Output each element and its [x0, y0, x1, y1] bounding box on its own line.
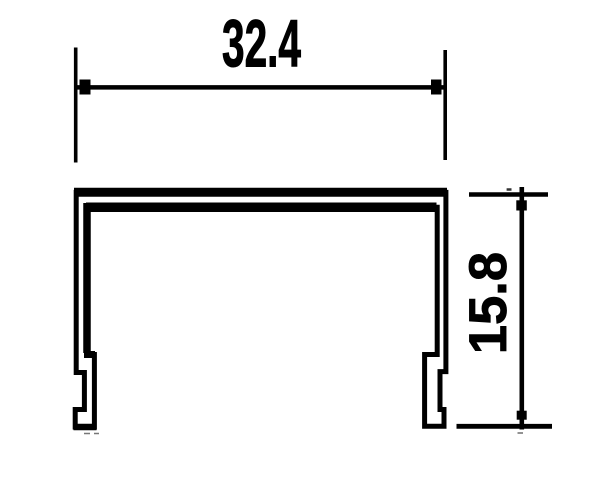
svg-text:15.8: 15.8: [459, 252, 518, 354]
svg-text:32.4: 32.4: [222, 6, 301, 81]
